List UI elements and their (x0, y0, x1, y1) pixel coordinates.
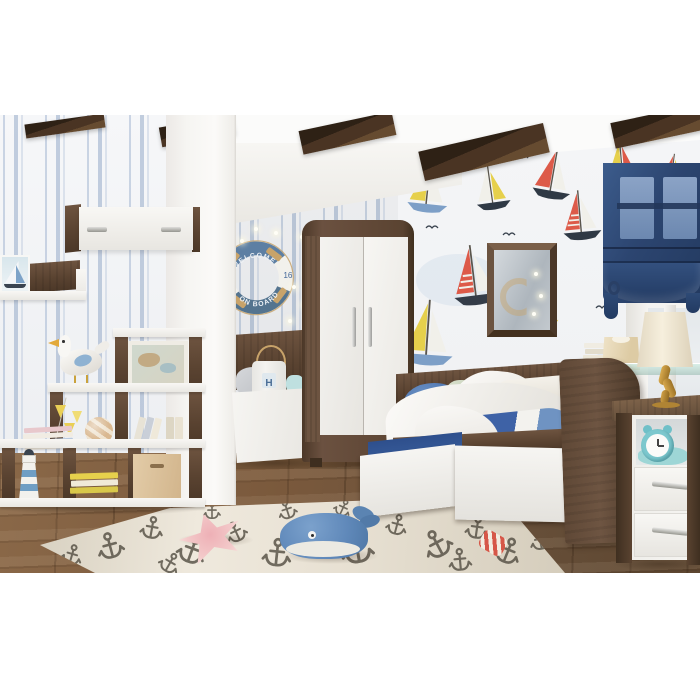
toy-bucket-label-patch: H (262, 373, 276, 388)
wardrobe-side-panel (305, 236, 320, 442)
string-light-bulb (288, 319, 292, 323)
cabinet-handle (161, 227, 181, 232)
sailboat-motif (472, 163, 512, 212)
blind-tie-bow (608, 281, 620, 295)
blind-side-tail (686, 293, 700, 313)
string-light-bulb (292, 285, 296, 289)
lamp-shade (637, 312, 693, 367)
lamp-base-disc (652, 402, 680, 408)
lighthouse-tower (16, 463, 42, 499)
shelf-divider (189, 447, 202, 500)
shelf-board (0, 291, 86, 300)
seagull-tail (93, 339, 111, 356)
seagull-eye (62, 340, 65, 343)
blind-side-tail (604, 293, 618, 319)
anchor-icon (448, 548, 471, 570)
wardrobe-door-gap (363, 237, 364, 435)
string-light-bulb (254, 227, 258, 231)
wall-shelf (0, 253, 90, 303)
photo-canvas: WELCOME ON BOARD 16 H (0, 0, 700, 700)
wardrobe-door-left (320, 237, 363, 435)
nightstand-leg-left (616, 413, 632, 563)
storage-box (133, 454, 181, 498)
bed-drawer-closed (455, 445, 573, 522)
string-light-bulb (274, 231, 278, 235)
wall-mirror (487, 243, 557, 337)
room-photo: WELCOME ON BOARD 16 H (0, 115, 700, 573)
blind-fold (603, 247, 700, 249)
seagull-plush (52, 333, 110, 385)
nightstand-leg-right (687, 415, 700, 565)
bird-motif (503, 233, 515, 235)
bird-motif (426, 226, 438, 228)
shelf-board (48, 383, 205, 392)
string-light-bulb (240, 239, 244, 243)
whale-pupil (311, 534, 314, 537)
anchor-icon (140, 515, 165, 539)
shelf-board (113, 328, 205, 337)
picture-hull (4, 284, 26, 288)
wardrobe-handle-left (352, 307, 356, 347)
toy-bucket-label: H (265, 378, 272, 389)
book (70, 486, 118, 494)
pennant-flag (72, 411, 82, 423)
wardrobe-foot (310, 458, 322, 467)
clock-hand (658, 445, 664, 447)
shelf-back-panel (28, 260, 80, 293)
shelf-board (0, 439, 205, 448)
seagull-beak (48, 339, 59, 347)
toy-box (232, 388, 312, 463)
anchor-icon (94, 530, 125, 560)
wall-cabinet (65, 207, 200, 250)
alarm-clock (640, 425, 676, 463)
whale-belly (286, 541, 360, 557)
cabinet-handle (87, 227, 107, 232)
sailboat-picture (0, 255, 30, 293)
wardrobe-handle-right (368, 307, 372, 347)
picture-sail (16, 265, 25, 283)
framed-map-picture (128, 341, 188, 389)
map-blob (160, 363, 176, 373)
blind-crossbar (617, 203, 700, 209)
anchor-icon (385, 513, 409, 536)
lighthouse-gallery (22, 455, 36, 463)
map-blob (138, 353, 160, 367)
anchor-icon (419, 525, 455, 561)
step-bookshelf (0, 325, 205, 515)
cabinet-end-cap (192, 207, 200, 252)
table-lamp (637, 312, 693, 408)
shelf-divider (2, 447, 15, 500)
mirror-reflection-ring (500, 278, 538, 316)
box-handle-slot (150, 464, 164, 468)
lighthouse-figurine (16, 449, 42, 499)
whale-plush (280, 503, 376, 561)
shelf-board (0, 498, 205, 507)
